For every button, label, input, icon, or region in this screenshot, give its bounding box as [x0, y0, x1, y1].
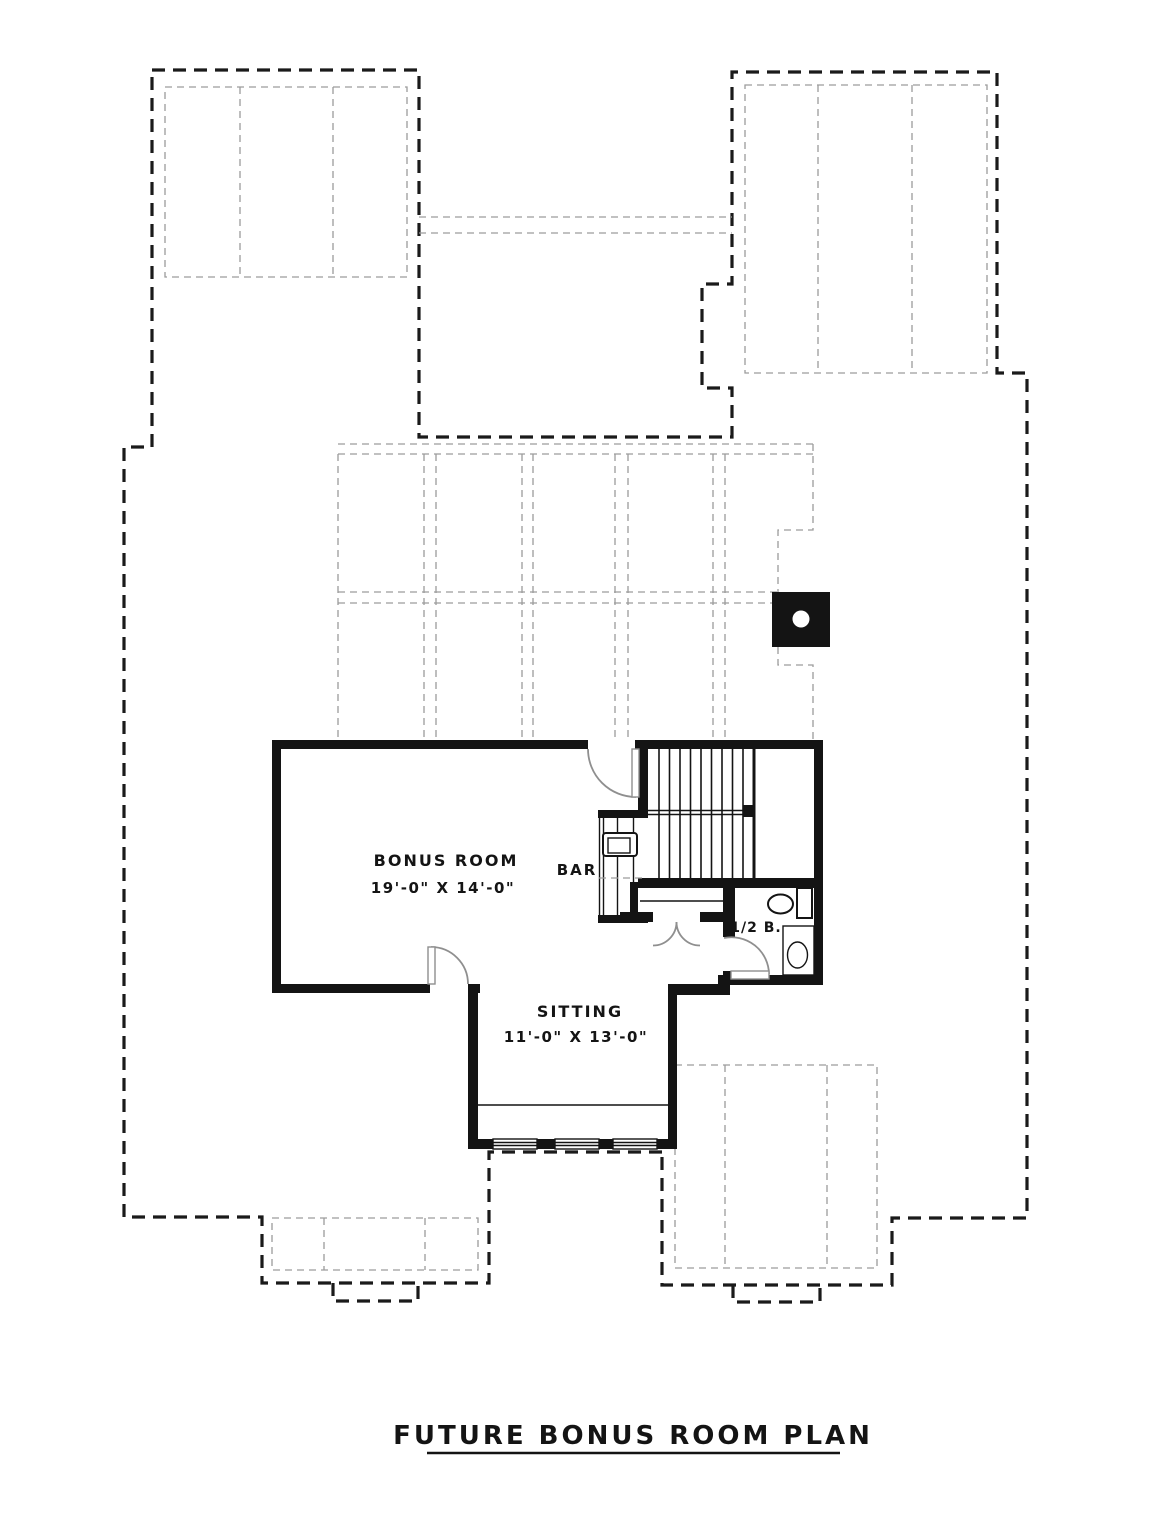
- roof-outline: [124, 70, 1027, 1302]
- walls: [272, 740, 823, 1149]
- door-leaf: [632, 749, 639, 797]
- stoop-left: [333, 1283, 418, 1301]
- room-label-half-bath: 1/2 B.: [730, 920, 781, 936]
- wall-segment: [272, 984, 430, 993]
- roof-panel-top-left: [165, 87, 407, 277]
- wall-segment: [668, 995, 677, 1140]
- flue-icon: [793, 611, 810, 628]
- door-leaf: [428, 947, 435, 984]
- ceiling-grid-middle: [338, 444, 813, 740]
- roof-outline-east: [152, 70, 1027, 1285]
- roof-outline-west: [124, 70, 662, 1283]
- ridge-lines-top-middle: [419, 217, 732, 233]
- sheet-title: FUTURE BONUS ROOM PLAN: [393, 1421, 873, 1453]
- door-leaf: [731, 971, 769, 979]
- stair-landing-door: [588, 749, 639, 797]
- bar-counter: [599, 818, 647, 915]
- roof-panel-bottom-right: [675, 1065, 877, 1268]
- floor-plan-canvas: BONUS ROOM 19'-0" X 14'-0" BAR SITTING 1…: [0, 0, 1175, 1536]
- wall-segment: [598, 810, 648, 818]
- wall-segment: [620, 912, 653, 922]
- wall-segment: [638, 878, 823, 888]
- toilet: [768, 888, 812, 918]
- wall-segment: [700, 912, 723, 922]
- wall-segment: [657, 1139, 677, 1149]
- roof-panel-top-right: [745, 85, 987, 373]
- chimney: [772, 592, 830, 647]
- stoop-right: [733, 1285, 820, 1302]
- room-label-bar: BAR: [557, 861, 598, 879]
- window: [555, 1139, 599, 1149]
- attic-access-door: [428, 947, 468, 984]
- window: [613, 1139, 657, 1149]
- half-bath-door: [724, 937, 769, 979]
- wall-segment: [668, 984, 730, 995]
- wall-segment: [468, 1139, 493, 1149]
- floor-plan-sheet: BONUS ROOM 19'-0" X 14'-0" BAR SITTING 1…: [0, 0, 1175, 1536]
- room-label-bonus: BONUS ROOM: [374, 851, 519, 870]
- wall-segment: [272, 740, 588, 749]
- newel-post: [743, 805, 755, 817]
- plan-title: FUTURE BONUS ROOM PLAN: [393, 1421, 873, 1451]
- sitting-windows: [493, 1139, 657, 1149]
- wall-segment: [537, 1139, 555, 1149]
- wall-segment: [599, 1139, 613, 1149]
- double-doors-sitting: [653, 922, 700, 946]
- bath-sink: [783, 926, 814, 975]
- roof-panel-bottom-left: [272, 1218, 478, 1270]
- wall-segment: [635, 740, 823, 749]
- wall-segment: [814, 749, 823, 985]
- bar-sink: [603, 833, 637, 856]
- window: [493, 1139, 537, 1149]
- room-label-sitting: SITTING: [537, 1002, 623, 1021]
- wall-segment: [468, 984, 480, 993]
- room-dims-bonus: 19'-0" X 14'-0": [371, 879, 515, 897]
- wall-segment: [468, 993, 478, 1140]
- wall-segment: [272, 749, 281, 993]
- room-dims-sitting: 11'-0" X 13'-0": [504, 1028, 648, 1046]
- stair-treads: [659, 749, 754, 878]
